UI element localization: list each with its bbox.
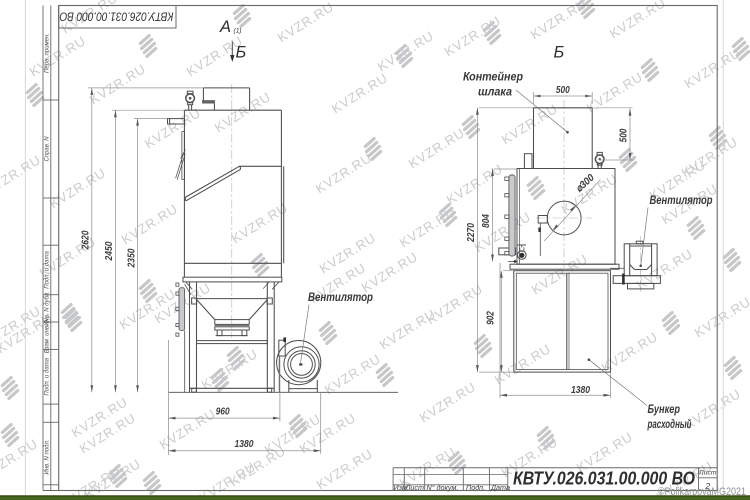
svg-text:Бункер: Бункер bbox=[648, 402, 681, 416]
svg-text:Подп.: Подп. bbox=[466, 483, 485, 492]
svg-text:KVZR.RU: KVZR.RU bbox=[0, 152, 44, 198]
svg-text:KVZR.RU: KVZR.RU bbox=[529, 251, 591, 297]
svg-text:KVZR.RU: KVZR.RU bbox=[528, 0, 590, 42]
svg-text:KVZR.RU: KVZR.RU bbox=[322, 351, 384, 397]
svg-text:2620: 2620 bbox=[81, 230, 92, 250]
svg-text:KVZR.RU: KVZR.RU bbox=[157, 406, 219, 452]
svg-text:KVZR.RU: KVZR.RU bbox=[313, 150, 375, 196]
svg-text:500: 500 bbox=[556, 85, 570, 96]
svg-text:расходный: расходный bbox=[647, 417, 692, 431]
svg-text:N° докум.: N° докум. bbox=[427, 483, 459, 492]
svg-text:902: 902 bbox=[486, 311, 497, 325]
svg-text:Подп. и дата: Подп. и дата bbox=[44, 251, 50, 289]
svg-text:KVZR.RU: KVZR.RU bbox=[314, 446, 376, 492]
svg-text:KVZR.RU: KVZR.RU bbox=[444, 161, 506, 207]
svg-text:KVZR.RU: KVZR.RU bbox=[275, 0, 337, 45]
svg-text:Б: Б bbox=[236, 44, 247, 62]
svg-text:(1): (1) bbox=[234, 28, 242, 35]
svg-text:Справ. N: Справ. N bbox=[44, 136, 50, 162]
svg-text:2450: 2450 bbox=[104, 241, 115, 261]
svg-text:Взам. инв. N: Взам. инв. N bbox=[44, 318, 50, 354]
svg-text:KVZR.RU: KVZR.RU bbox=[142, 105, 204, 151]
svg-text:Контейнер: Контейнер bbox=[463, 70, 523, 84]
svg-text:500: 500 bbox=[619, 128, 630, 142]
svg-text:KVZR.RU: KVZR.RU bbox=[377, 306, 439, 352]
svg-text:1380: 1380 bbox=[571, 385, 590, 396]
svg-text:KVZR.RU: KVZR.RU bbox=[119, 201, 181, 247]
svg-text:KVZR.RU: KVZR.RU bbox=[692, 294, 750, 340]
svg-text:Дата: Дата bbox=[490, 483, 510, 492]
svg-text:Лист: Лист bbox=[698, 470, 717, 477]
svg-text:KVZR.RU: KVZR.RU bbox=[87, 61, 149, 107]
svg-text:KVZR.RU: KVZR.RU bbox=[329, 70, 391, 116]
svg-text:KVZR.RU: KVZR.RU bbox=[607, 0, 669, 41]
svg-text:Лист: Лист bbox=[405, 483, 425, 492]
svg-text:KVZR.RU: KVZR.RU bbox=[212, 89, 274, 135]
svg-text:KVZR.RU: KVZR.RU bbox=[406, 125, 468, 171]
svg-text:KVZR.RU: KVZR.RU bbox=[584, 69, 646, 115]
svg-text:Вентилятор: Вентилятор bbox=[308, 290, 373, 304]
svg-text:Б: Б bbox=[554, 44, 565, 62]
svg-text:Инв. N подл.: Инв. N подл. bbox=[44, 439, 50, 474]
svg-text:804: 804 bbox=[481, 214, 492, 228]
svg-text:2350: 2350 bbox=[126, 248, 137, 268]
svg-text:А: А bbox=[219, 18, 231, 36]
svg-text:KVZR.RU: KVZR.RU bbox=[417, 379, 479, 425]
svg-text:KVZR.RU: KVZR.RU bbox=[27, 33, 89, 79]
svg-text:Вентилятор: Вентилятор bbox=[650, 193, 713, 207]
svg-text:Подп. и дата: Подп. и дата bbox=[44, 357, 50, 395]
svg-text:960: 960 bbox=[216, 407, 230, 418]
svg-text:шлака: шлака bbox=[478, 84, 512, 98]
svg-text:1380: 1380 bbox=[235, 439, 254, 450]
svg-text:Перв. примен.: Перв. примен. bbox=[44, 33, 50, 73]
svg-text:2270: 2270 bbox=[466, 223, 477, 243]
svg-text:KVZR.RU: KVZR.RU bbox=[47, 165, 109, 211]
svg-text:КВТУ.026.031.00.000 ВО: КВТУ.026.031.00.000 ВО bbox=[59, 10, 173, 24]
